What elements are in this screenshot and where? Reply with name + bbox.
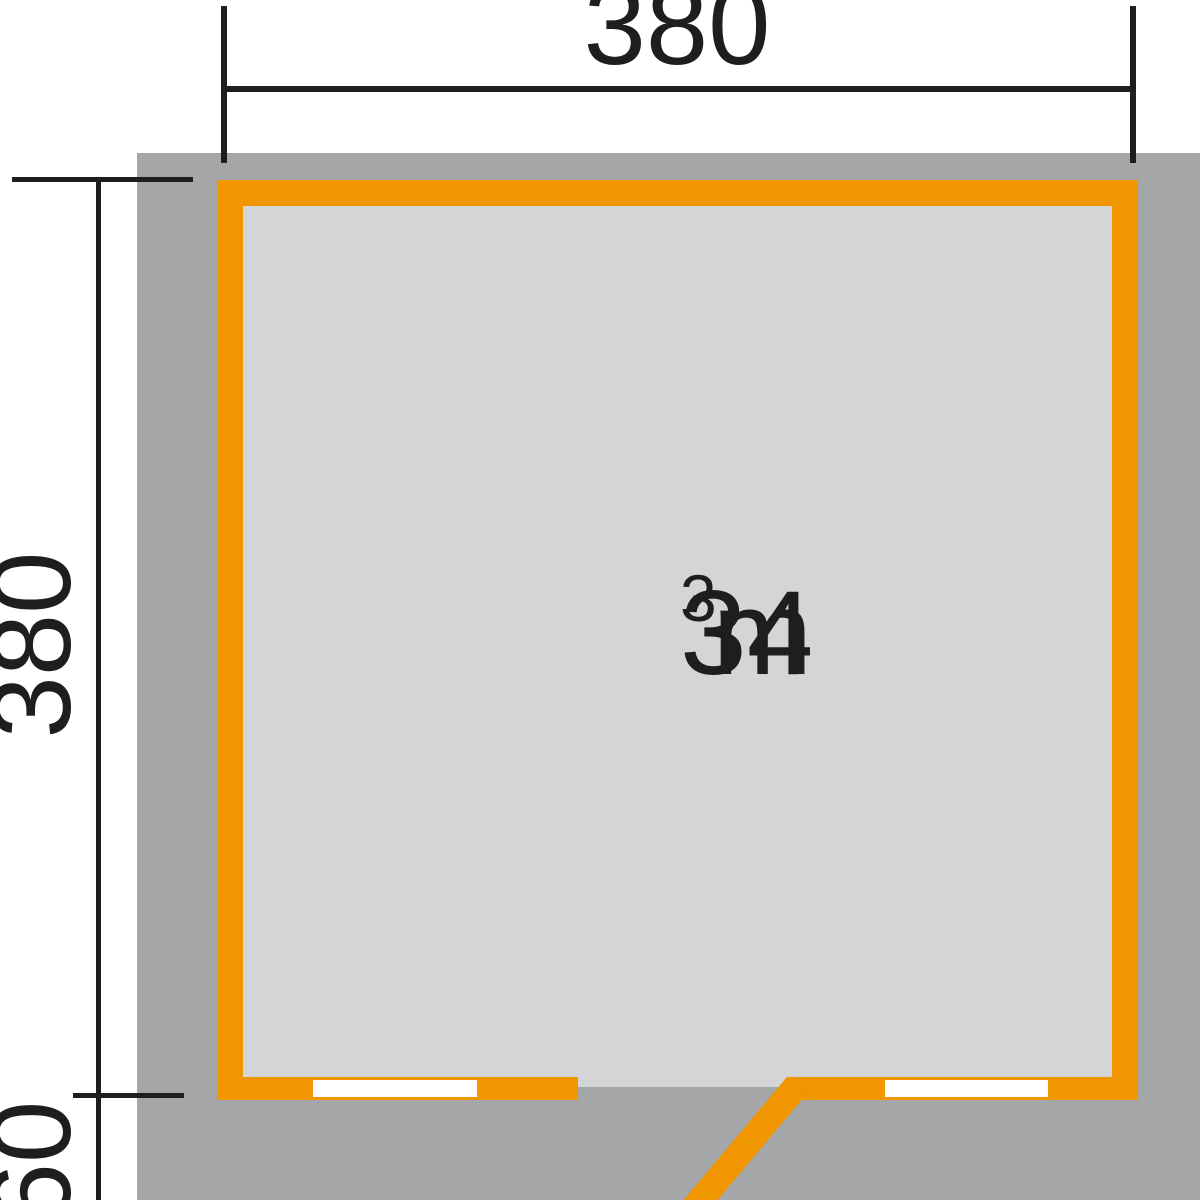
depth-dimension-tick-top: [12, 177, 193, 182]
volume-unit: m: [712, 573, 812, 693]
wall-back: [217, 180, 1138, 206]
volume-exponent: 3: [680, 538, 717, 658]
width-dimension-tick-right: [1130, 6, 1136, 163]
window-opening-2: [885, 1080, 1048, 1097]
interior-floor: [243, 206, 1112, 1087]
door-leaf-open: [645, 1077, 816, 1200]
door-leaf-clip: [600, 1077, 900, 1200]
width-dimension-tick-left: [221, 6, 227, 163]
window-opening-1: [313, 1080, 477, 1097]
wall-right: [1112, 180, 1138, 1100]
overhang-dimension-label: 60: [0, 1013, 92, 1200]
floor-plan-diagram: 380 380 60 34m3: [0, 0, 1200, 1200]
depth-dimension-label: 380: [0, 495, 92, 795]
width-dimension-label: 380: [527, 0, 827, 82]
depth-dimension-line: [96, 177, 101, 1200]
wall-left: [217, 180, 243, 1100]
